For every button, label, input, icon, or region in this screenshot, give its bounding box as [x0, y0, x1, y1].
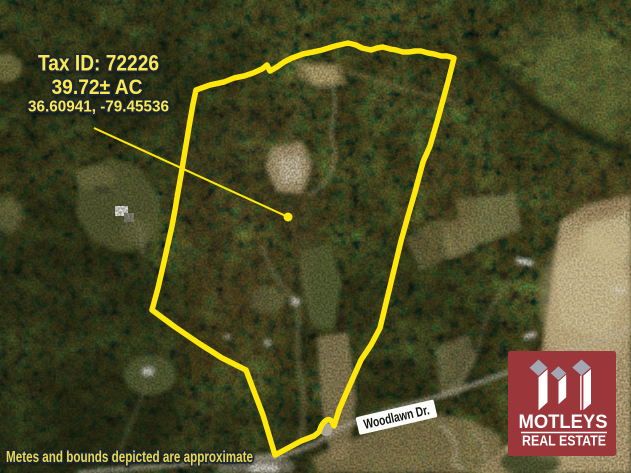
svg-text:REAL ESTATE: REAL ESTATE — [522, 434, 606, 450]
svg-text:Metes and bounds depicted are: Metes and bounds depicted are approximat… — [6, 449, 253, 466]
svg-text:39.72± AC: 39.72± AC — [52, 76, 143, 99]
svg-text:MOTLEYS: MOTLEYS — [519, 412, 608, 433]
svg-text:Tax ID: 72226: Tax ID: 72226 — [38, 51, 159, 76]
svg-text:36.60941, -79.45536: 36.60941, -79.45536 — [28, 99, 169, 116]
